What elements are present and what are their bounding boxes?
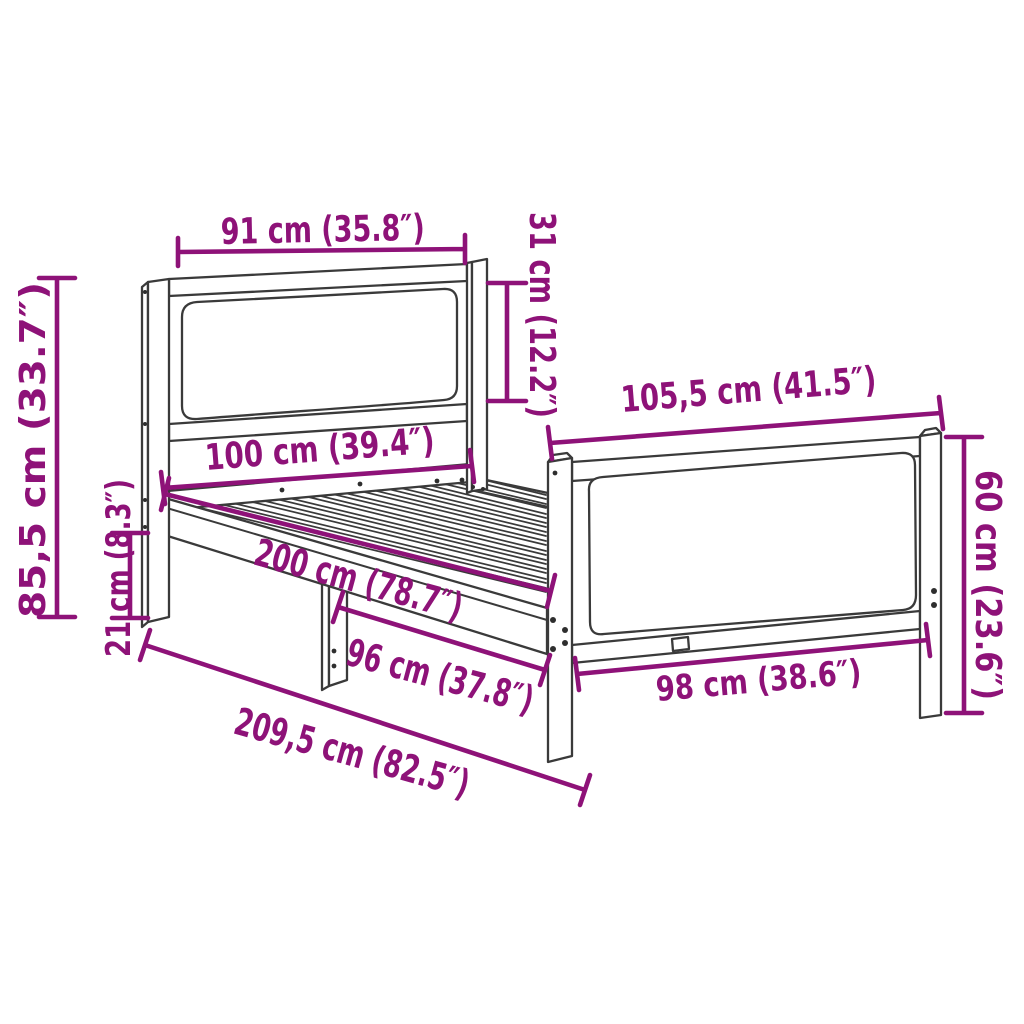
headboard-cushion [182, 289, 457, 419]
footboard-front-post [548, 458, 572, 762]
bed-frame-diagram: 91 cm (35.8″) 31 cm (12.2″) 105,5 cm (41… [0, 0, 1024, 1024]
dimension-label-headboard-height: 85,5 cm (33.7″) [13, 282, 54, 618]
dimension-label-frame-inner-length: 96 cm (37.8″) [342, 630, 539, 722]
dimension-leg-height: 21 cm (8.3″) [99, 479, 148, 657]
dimension-headboard-cushion-height: 31 cm (12.2″) [488, 212, 562, 418]
dimension-label-footboard-width: 105,5 cm (41.5″) [619, 360, 877, 421]
headboard-right-post [472, 259, 487, 491]
dimension-label-footboard-inner-width: 98 cm (38.6″) [654, 652, 863, 710]
footboard-right-post [920, 433, 941, 718]
dimension-footboard-height: 60 cm (23.6″) [946, 437, 1008, 713]
dimension-headboard-height: 85,5 cm (33.7″) [13, 278, 75, 618]
footboard-bracket [672, 637, 689, 651]
diagram-canvas: 91 cm (35.8″) 31 cm (12.2″) 105,5 cm (41… [0, 0, 1024, 1024]
footboard [548, 428, 941, 762]
dimension-label-footboard-height: 60 cm (23.6″) [967, 470, 1008, 700]
footboard-cushion [589, 453, 916, 634]
dimension-label-headboard-width: 91 cm (35.8″) [220, 208, 425, 253]
dimension-label-leg-height: 21 cm (8.3″) [99, 479, 139, 657]
dimension-label-headboard-cushion-height: 31 cm (12.2″) [521, 212, 562, 418]
headboard-left-post [148, 279, 169, 622]
dimension-headboard-width: 91 cm (35.8″) [178, 208, 465, 266]
